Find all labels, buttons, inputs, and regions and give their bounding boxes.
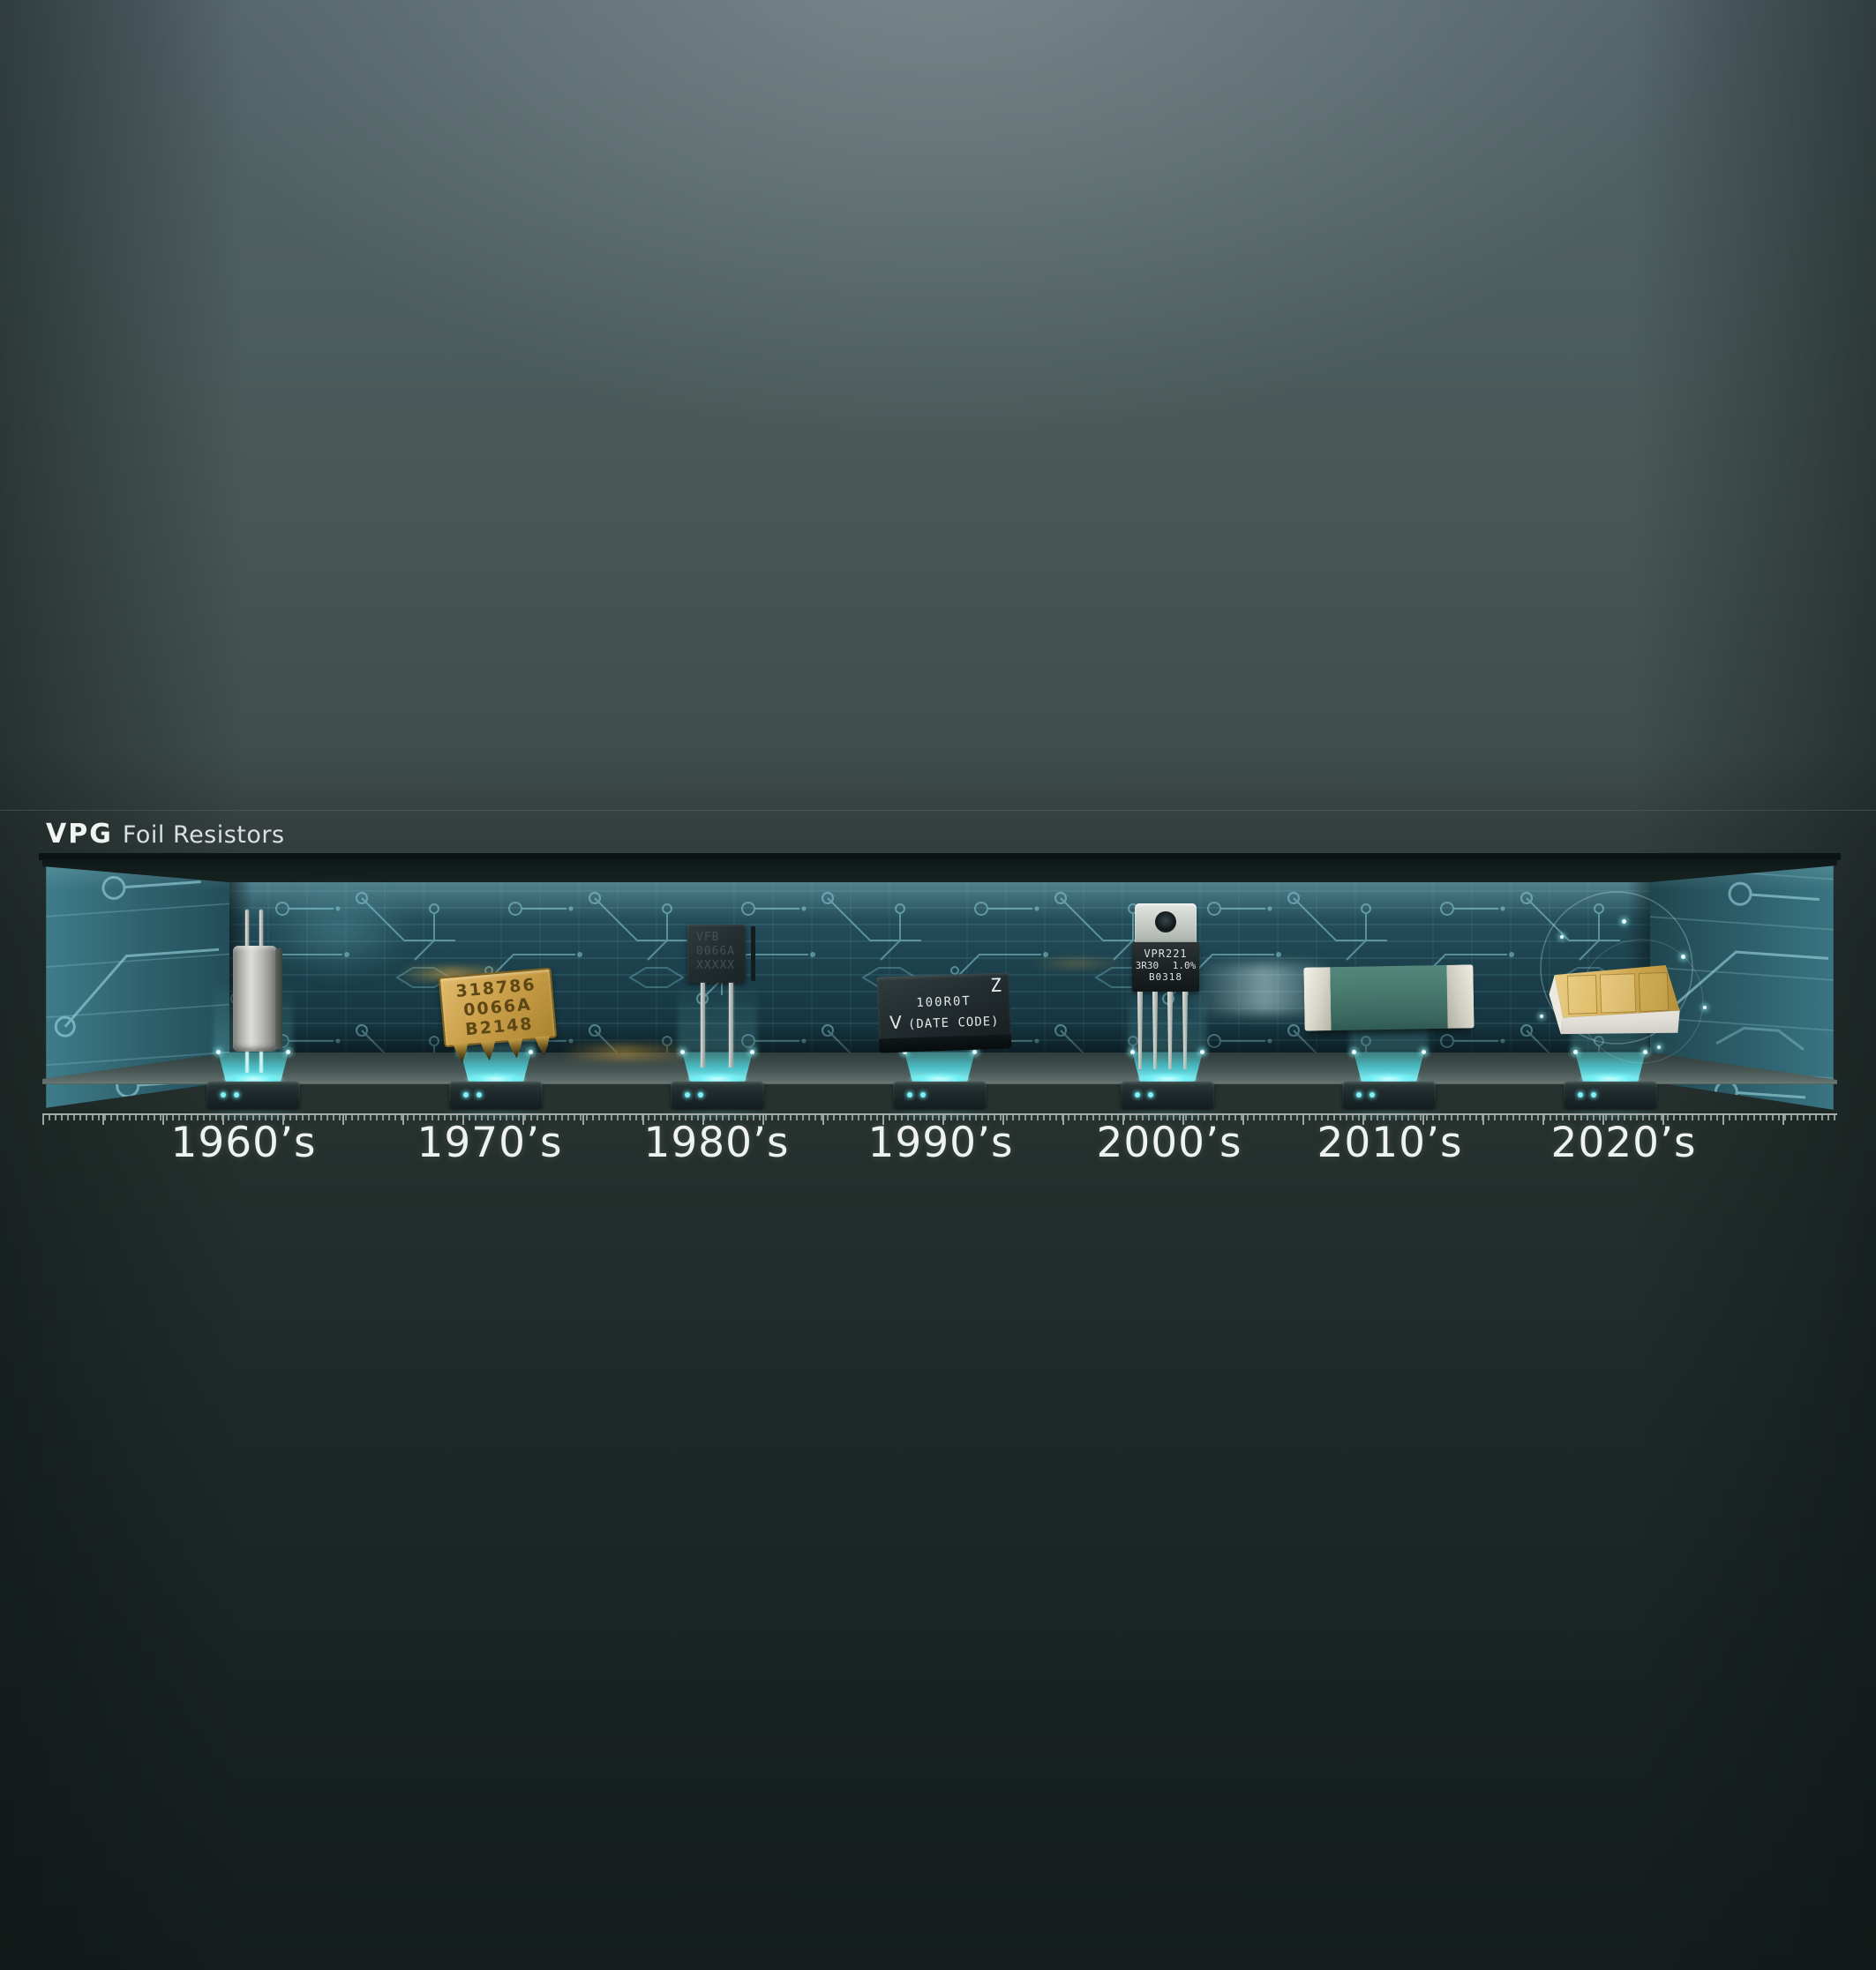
pedestal-light-dot <box>1591 1092 1596 1097</box>
to220-marking-line: B0318 <box>1132 971 1199 983</box>
pedestal-light-dot <box>1369 1092 1375 1097</box>
decade-label-1990s: 1990’s <box>867 1119 1013 1167</box>
band-top-edge <box>0 810 1876 811</box>
chip-termination-left <box>1303 967 1331 1031</box>
to220-body: VPR221 3R30 1.0% B0318 <box>1132 942 1199 992</box>
resistor-lead <box>259 1052 263 1073</box>
cone-corner-dot <box>529 1050 533 1054</box>
decade-label-2010s: 2010’s <box>1317 1119 1462 1167</box>
vpg-logo-name: Foil Resistors <box>123 821 285 849</box>
chip-termination-right <box>1446 964 1474 1029</box>
cyan-glow-cloud <box>265 882 415 979</box>
dip-markings: 318786 0066A B2148 <box>440 974 554 1042</box>
pedestal-light-dot <box>1148 1092 1153 1097</box>
sparkle-dot <box>1681 955 1685 959</box>
cone-corner-dot <box>1352 1050 1356 1054</box>
to220-marking-line: VPR221 <box>1132 948 1199 960</box>
sparkle-dot <box>1657 1045 1661 1049</box>
box-marking-line: VFB <box>696 931 746 945</box>
component-2020s-gold-module <box>1545 964 1685 1043</box>
cone-corner-dot <box>972 1050 977 1054</box>
pedestal-lights <box>869 1092 963 1097</box>
to220-mounting-hole <box>1155 911 1176 933</box>
to220-marking-line: 3R30 1.0% <box>1132 960 1199 971</box>
to220-markings: VPR221 3R30 1.0% B0318 <box>1132 942 1199 983</box>
decade-label-1960s: 1960’s <box>170 1119 316 1167</box>
to220-lead <box>1182 992 1189 1069</box>
pedestal-light-dot <box>698 1092 703 1097</box>
component-2000s-to220: VPR221 3R30 1.0% B0318 <box>1132 903 1203 1084</box>
pedestal-light-dot <box>221 1092 226 1097</box>
pedestal-lights <box>647 1092 740 1097</box>
sparkle-dot <box>1622 919 1626 924</box>
infographic-page: VPG Foil Resistors <box>0 0 1876 1970</box>
sparkle-dot <box>1703 1006 1707 1009</box>
module-panel <box>1600 974 1636 1014</box>
pedestal-light-dot <box>1578 1092 1583 1097</box>
cone-corner-dot <box>216 1050 221 1054</box>
vpg-logo: VPG Foil Resistors <box>46 819 285 850</box>
metal-can-body <box>233 946 277 1052</box>
box-edge-fin <box>751 926 755 981</box>
marking-datecode: (DATE CODE) <box>908 1015 1000 1032</box>
box-marking-line: XXXXX <box>696 959 746 973</box>
gold-streak <box>1031 958 1119 969</box>
to220-lead <box>1137 992 1144 1069</box>
component-1960s-metal-can <box>231 910 284 1095</box>
module-panel <box>1567 975 1598 1015</box>
pedestal-light-dot <box>463 1092 469 1097</box>
component-1980s-boxed-radial: VFB 0066A XXXXX <box>687 925 751 1083</box>
decade-label-2000s: 2000’s <box>1096 1119 1242 1167</box>
resistor-lead <box>259 910 263 947</box>
resistor-lead <box>245 1052 249 1073</box>
resistor-lead <box>729 983 733 1067</box>
component-2010s-chip-resistor <box>1303 964 1474 1030</box>
resistor-lead <box>245 910 249 947</box>
decade-label-1970s: 1970’s <box>416 1119 562 1167</box>
component-1970s-gold-dip: 318786 0066A B2148 <box>439 968 557 1048</box>
decade-label-2020s: 2020’s <box>1550 1119 1696 1167</box>
cone-corner-dot <box>1422 1050 1426 1054</box>
module-panel <box>1639 972 1670 1012</box>
to220-lead <box>1167 992 1174 1069</box>
to220-metal-tab <box>1135 903 1197 942</box>
pedestal-lights <box>1097 1092 1190 1097</box>
resistor-lead <box>701 983 705 1067</box>
sparkle-dot <box>1560 935 1564 939</box>
pedestal-light-dot <box>477 1092 482 1097</box>
pedestal-light-dot <box>1356 1092 1362 1097</box>
sparkle-dot <box>1540 1015 1543 1018</box>
pedestal-lights <box>1318 1092 1412 1097</box>
component-1990s-molded-smd: Z 100R0T V (DATE CODE) <box>877 972 1012 1052</box>
chip-green-body <box>1330 965 1447 1030</box>
to220-lead <box>1152 992 1159 1069</box>
vpg-logo-brand: VPG <box>46 819 113 850</box>
wall-light-band <box>229 882 1650 919</box>
pedestal-lights <box>1540 1092 1633 1097</box>
cone-corner-dot <box>680 1050 685 1054</box>
marking-v: V <box>889 1012 903 1033</box>
box-body: VFB 0066A XXXXX <box>687 925 746 983</box>
decade-label-1980s: 1980’s <box>643 1119 789 1167</box>
pedestal-light-dot <box>907 1092 912 1097</box>
pedestal-light-dot <box>920 1092 926 1097</box>
box-markings: VFB 0066A XXXXX <box>687 925 746 973</box>
metal-can-edge-fin <box>275 948 282 1049</box>
pedestal-light-dot <box>685 1092 690 1097</box>
cone-corner-dot <box>286 1050 290 1054</box>
pedestal-light-dot <box>1135 1092 1140 1097</box>
pedestal-lights <box>425 1092 519 1097</box>
box-marking-line: 0066A <box>696 945 746 959</box>
